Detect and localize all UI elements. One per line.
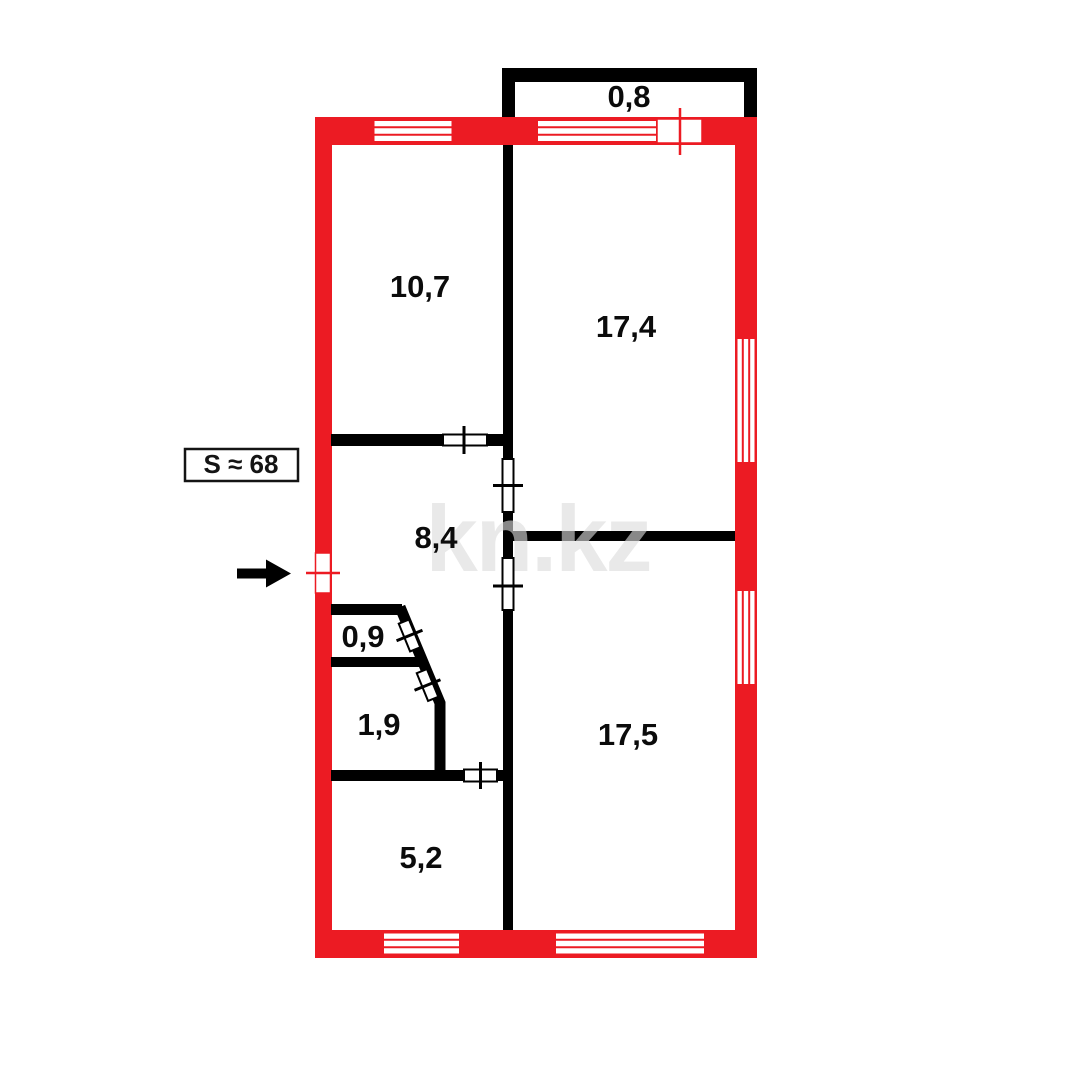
wall-right [735,117,757,958]
total-area-label: S ≈ 68 [204,449,279,479]
total-area-badge: S ≈ 68 [185,449,298,481]
window-right-upper [737,338,756,463]
floor-plan: kn.kz 0,8 10,7 17,4 8,4 0,9 1,9 5,2 17,5… [0,0,1080,1080]
room-labels: 0,8 10,7 17,4 8,4 0,9 1,9 5,2 17,5 [341,79,658,875]
balcony-wall-right [744,80,757,117]
label-hall-area: 8,4 [414,520,458,555]
window-top-left [374,120,453,142]
label-bathroom-area: 1,9 [357,707,400,742]
balcony-door [657,108,702,155]
door-topleft-room [443,426,487,454]
window-top-right [537,120,657,142]
door-kitchen [464,762,497,789]
label-balcony-area: 0,8 [607,79,650,114]
entrance-door [306,553,340,593]
label-wc-area: 0,9 [341,619,384,654]
label-bottom-right-room-area: 17,5 [598,717,658,752]
label-top-right-room-area: 17,4 [596,309,657,344]
floor-plan-canvas: kn.kz 0,8 10,7 17,4 8,4 0,9 1,9 5,2 17,5… [0,0,1080,1080]
balcony-wall-left [502,80,515,117]
label-top-left-room-area: 10,7 [390,269,450,304]
watermark: kn.kz [425,486,650,591]
wall-wc-bottom [331,657,421,667]
window-bottom-right [555,933,705,955]
wall-wc-top [331,604,402,615]
window-right-lower [737,590,756,685]
label-kitchen-area: 5,2 [399,840,442,875]
window-bottom-left [383,933,460,955]
entrance-arrow-icon [237,560,291,588]
wall-left [315,117,332,958]
